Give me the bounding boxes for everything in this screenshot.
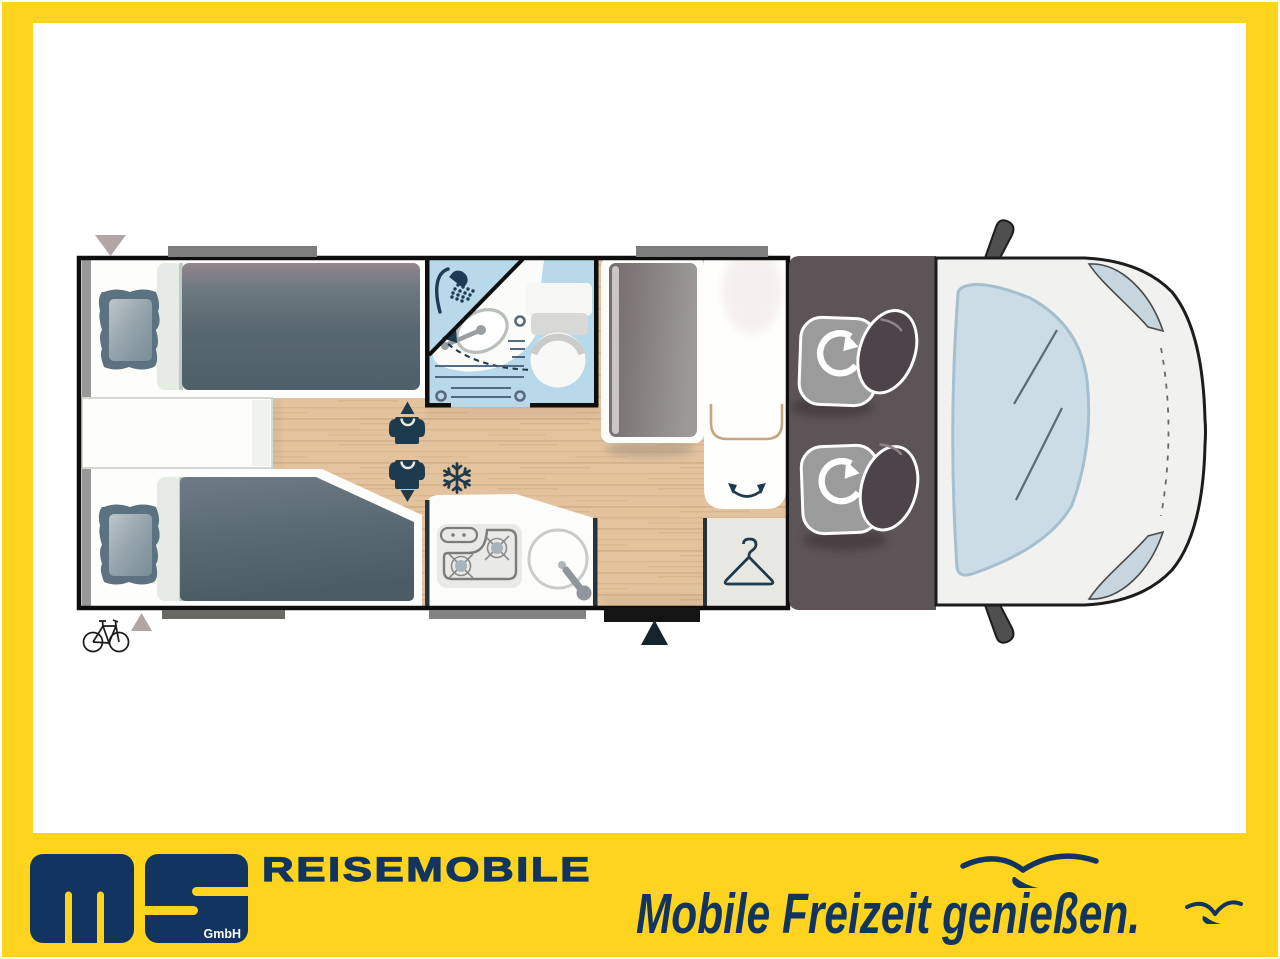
svg-text:GmbH: GmbH	[204, 927, 242, 941]
svg-text:Mobile Freizeit genießen.: Mobile Freizeit genießen.	[636, 882, 1140, 946]
svg-text:REISEMOBILE: REISEMOBILE	[262, 851, 592, 889]
